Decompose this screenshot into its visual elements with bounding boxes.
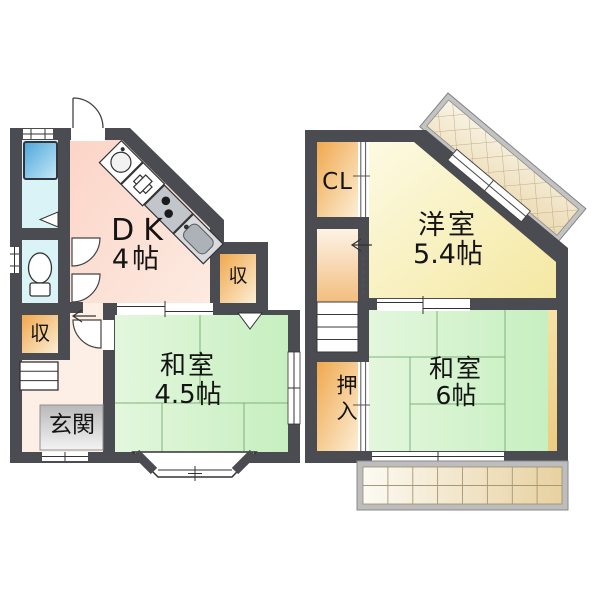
genkan-label: 玄関 (40, 414, 104, 437)
window-toilet-left (10, 247, 19, 273)
window-washitsu6-bottom (372, 452, 504, 461)
toilet-icon (29, 253, 52, 296)
floorplan-graphics (0, 0, 600, 600)
stairs-icon (317, 302, 358, 352)
dk-label: DK (92, 216, 182, 246)
window-washitsu45-right (288, 352, 300, 424)
exterior-door-dk (71, 98, 105, 141)
washitsu45-size-label: 4.5帖 (126, 382, 250, 408)
yoshitsu-label: 洋室 (388, 212, 508, 239)
cl-label: CL (316, 171, 359, 194)
dk-size-label: 4帖 (92, 246, 182, 273)
washitsu6-size-label: 6帖 (396, 383, 516, 408)
bay-window (133, 452, 256, 481)
window-bath-top (23, 129, 53, 139)
window-ledge (548, 310, 557, 451)
washitsu45-label: 和室 (136, 353, 240, 379)
washitsu6-label: 和室 (396, 356, 516, 381)
floorplan-canvas: DK 4帖 和室 4.5帖 玄関 収 収 CL 洋室 5.4帖 和室 6帖 押入 (0, 0, 600, 600)
oshiire-label: 押入 (320, 374, 356, 458)
bathtub-icon (24, 142, 57, 179)
sliding-door-dk-washitsu (117, 301, 213, 317)
storage-lower-label: 収 (21, 323, 59, 343)
yoshitsu-size-label: 5.4帖 (388, 241, 508, 268)
storage-upper-label: 収 (219, 267, 257, 286)
upper-hall (317, 229, 358, 302)
shoe-cabinet-icon (20, 362, 58, 390)
balcony-bottom (357, 461, 568, 510)
entrance-sliding-door (42, 452, 88, 461)
